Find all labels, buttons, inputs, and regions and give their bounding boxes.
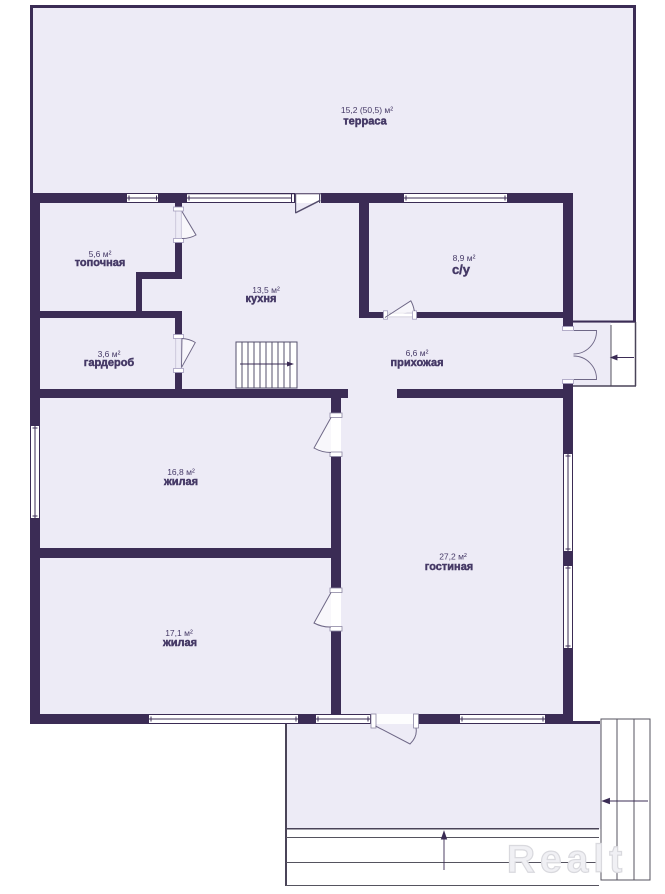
svg-text:терраса: терраса (343, 116, 387, 128)
svg-text:жилая: жилая (163, 476, 198, 488)
svg-text:прихожая: прихожая (390, 357, 443, 369)
svg-text:гардероб: гардероб (84, 357, 135, 369)
svg-text:27,2 м²: 27,2 м² (439, 552, 467, 562)
svg-text:Realt: Realt (507, 838, 627, 881)
svg-text:жилая: жилая (162, 637, 197, 649)
svg-text:топочная: топочная (75, 257, 126, 269)
svg-text:15,2 (50,5) м²: 15,2 (50,5) м² (341, 105, 393, 115)
svg-text:кухня: кухня (246, 293, 277, 305)
svg-text:гостиная: гостиная (425, 561, 473, 573)
svg-text:с/у: с/у (452, 262, 471, 277)
